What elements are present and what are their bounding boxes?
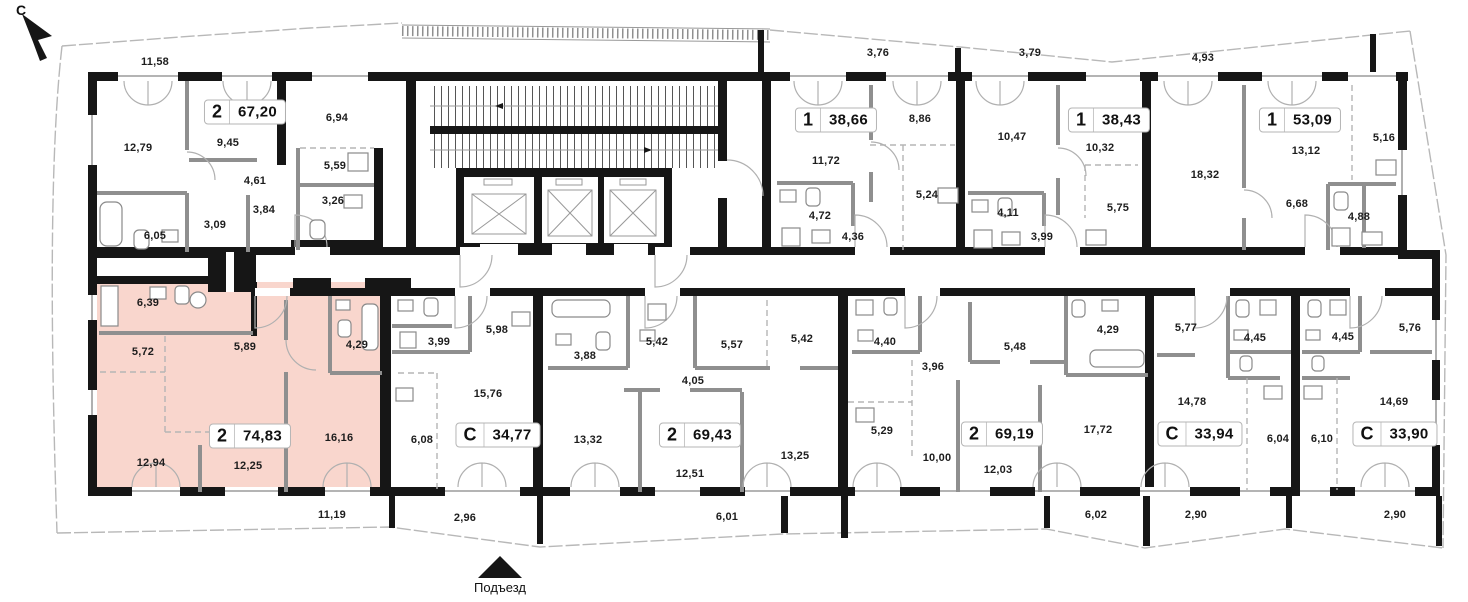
apartment-badge[interactable]: С33,90 (1352, 422, 1437, 447)
room-area-label: 5,16 (1373, 132, 1395, 144)
room-area-label: 16,16 (325, 432, 354, 444)
room-area-label: 17,72 (1084, 424, 1113, 436)
room-area-label: 11,72 (812, 155, 840, 167)
room-area-label: 10,32 (1086, 142, 1115, 154)
room-area-label: 13,32 (574, 434, 603, 446)
room-area-label: 4,29 (346, 339, 368, 351)
room-area-label: 13,12 (1292, 145, 1321, 157)
room-area-label: 5,76 (1399, 322, 1421, 334)
room-area-label: 3,76 (867, 47, 889, 59)
room-area-label: 14,78 (1178, 396, 1207, 408)
room-area-label: 10,00 (923, 452, 952, 464)
room-area-label: 6,02 (1085, 509, 1107, 521)
apartment-badge[interactable]: 153,09 (1259, 108, 1341, 133)
apartment-badge[interactable]: 138,66 (795, 108, 877, 133)
room-area-label: 12,03 (984, 464, 1013, 476)
staircase (430, 86, 718, 168)
apartment-type: 1 (796, 109, 820, 132)
room-area-label: 3,09 (204, 219, 226, 231)
apartment-area: 34,77 (484, 424, 539, 447)
room-area-label: 11,58 (141, 56, 169, 68)
room-area-label: 4,05 (682, 375, 704, 387)
apartment-badge[interactable]: С34,77 (455, 423, 540, 448)
room-area-label: 5,72 (132, 346, 154, 358)
room-area-label: 6,94 (326, 112, 348, 124)
apartment-area: 38,66 (821, 109, 876, 132)
room-area-label: 6,39 (137, 297, 159, 309)
north-arrow-icon (22, 14, 52, 61)
apartment-area: 33,90 (1381, 423, 1436, 446)
apartment-type: 2 (205, 101, 229, 124)
apartment-badge[interactable]: 267,20 (204, 100, 286, 125)
room-area-label: 6,04 (1267, 433, 1289, 445)
apartment-area: 67,20 (230, 101, 285, 124)
room-area-label: 3,84 (253, 204, 275, 216)
room-area-label: 3,99 (1031, 231, 1053, 243)
room-area-label: 5,48 (1004, 341, 1026, 353)
room-area-label: 18,32 (1191, 169, 1220, 181)
room-area-label: 4,45 (1244, 332, 1266, 344)
room-area-label: 6,68 (1286, 198, 1308, 210)
room-area-label: 3,26 (322, 195, 344, 207)
room-area-label: 4,61 (244, 175, 266, 187)
room-area-label: 4,29 (1097, 324, 1119, 336)
entrance-label: Подъезд (474, 580, 526, 595)
room-area-label: 14,69 (1380, 396, 1409, 408)
room-area-label: 5,42 (646, 336, 668, 348)
room-area-label: 10,47 (998, 131, 1027, 143)
apartment-type: 2 (660, 424, 684, 447)
room-area-label: 2,90 (1384, 509, 1406, 521)
room-area-label: 5,75 (1107, 202, 1129, 214)
room-area-label: 11,19 (318, 509, 346, 521)
room-area-label: 5,59 (324, 160, 346, 172)
apartment-area: 53,09 (1285, 109, 1340, 132)
apartment-type: 2 (210, 425, 234, 448)
apartment-area: 69,19 (987, 423, 1042, 446)
room-area-label: 12,94 (137, 457, 166, 469)
room-area-label: 6,01 (716, 511, 738, 523)
room-area-label: 9,45 (217, 137, 239, 149)
room-area-label: 12,51 (676, 468, 705, 480)
apartment-area: 38,43 (1094, 109, 1149, 132)
room-area-label: 12,79 (124, 142, 153, 154)
elevators (456, 168, 672, 256)
room-area-label: 5,89 (234, 341, 256, 353)
room-area-label: 2,96 (454, 512, 476, 524)
floor-plan: С Подъезд 267,20 138,66 138,43 153,09 27… (0, 0, 1468, 602)
room-area-label: 12,25 (234, 460, 263, 472)
apartment-badge[interactable]: 269,43 (659, 423, 741, 448)
room-area-label: 3,96 (922, 361, 944, 373)
room-area-label: 6,08 (411, 434, 433, 446)
apartment-badge[interactable]: 269,19 (961, 422, 1043, 447)
apartment-type: С (456, 424, 483, 447)
room-area-label: 13,25 (781, 450, 810, 462)
room-area-label: 5,42 (791, 333, 813, 345)
apartment-type: 1 (1260, 109, 1284, 132)
room-area-label: 3,99 (428, 336, 450, 348)
room-area-label: 4,36 (842, 231, 864, 243)
apartment-area: 33,94 (1186, 423, 1241, 446)
apartment-type: С (1353, 423, 1380, 446)
room-area-label: 5,24 (916, 189, 938, 201)
room-area-label: 5,98 (486, 324, 508, 336)
room-area-label: 4,88 (1348, 211, 1370, 223)
room-area-label: 6,10 (1311, 433, 1333, 445)
room-area-label: 5,77 (1175, 322, 1197, 334)
room-area-label: 4,45 (1332, 331, 1354, 343)
north-label: С (16, 2, 26, 18)
room-area-label: 4,40 (874, 336, 896, 348)
apartment-area: 69,43 (685, 424, 740, 447)
room-area-label: 4,93 (1192, 52, 1214, 64)
room-area-label: 8,86 (909, 113, 931, 125)
room-area-label: 3,79 (1019, 47, 1041, 59)
apartment-type: С (1158, 423, 1185, 446)
apartment-badge[interactable]: С33,94 (1157, 422, 1242, 447)
room-area-label: 4,11 (997, 207, 1019, 219)
room-area-label: 5,57 (721, 339, 743, 351)
room-area-label: 5,29 (871, 425, 893, 437)
room-area-label: 4,72 (809, 210, 831, 222)
entrance-arrow-icon (478, 556, 522, 578)
room-area-label: 6,05 (144, 230, 166, 242)
apartment-type: 1 (1069, 109, 1093, 132)
apartment-type: 2 (962, 423, 986, 446)
apartment-badge[interactable]: 138,43 (1068, 108, 1150, 133)
apartment-badge[interactable]: 274,83 (209, 424, 291, 449)
room-area-label: 2,90 (1185, 509, 1207, 521)
room-area-label: 15,76 (474, 388, 503, 400)
room-area-label: 3,88 (574, 350, 596, 362)
apartment-area: 74,83 (235, 425, 290, 448)
